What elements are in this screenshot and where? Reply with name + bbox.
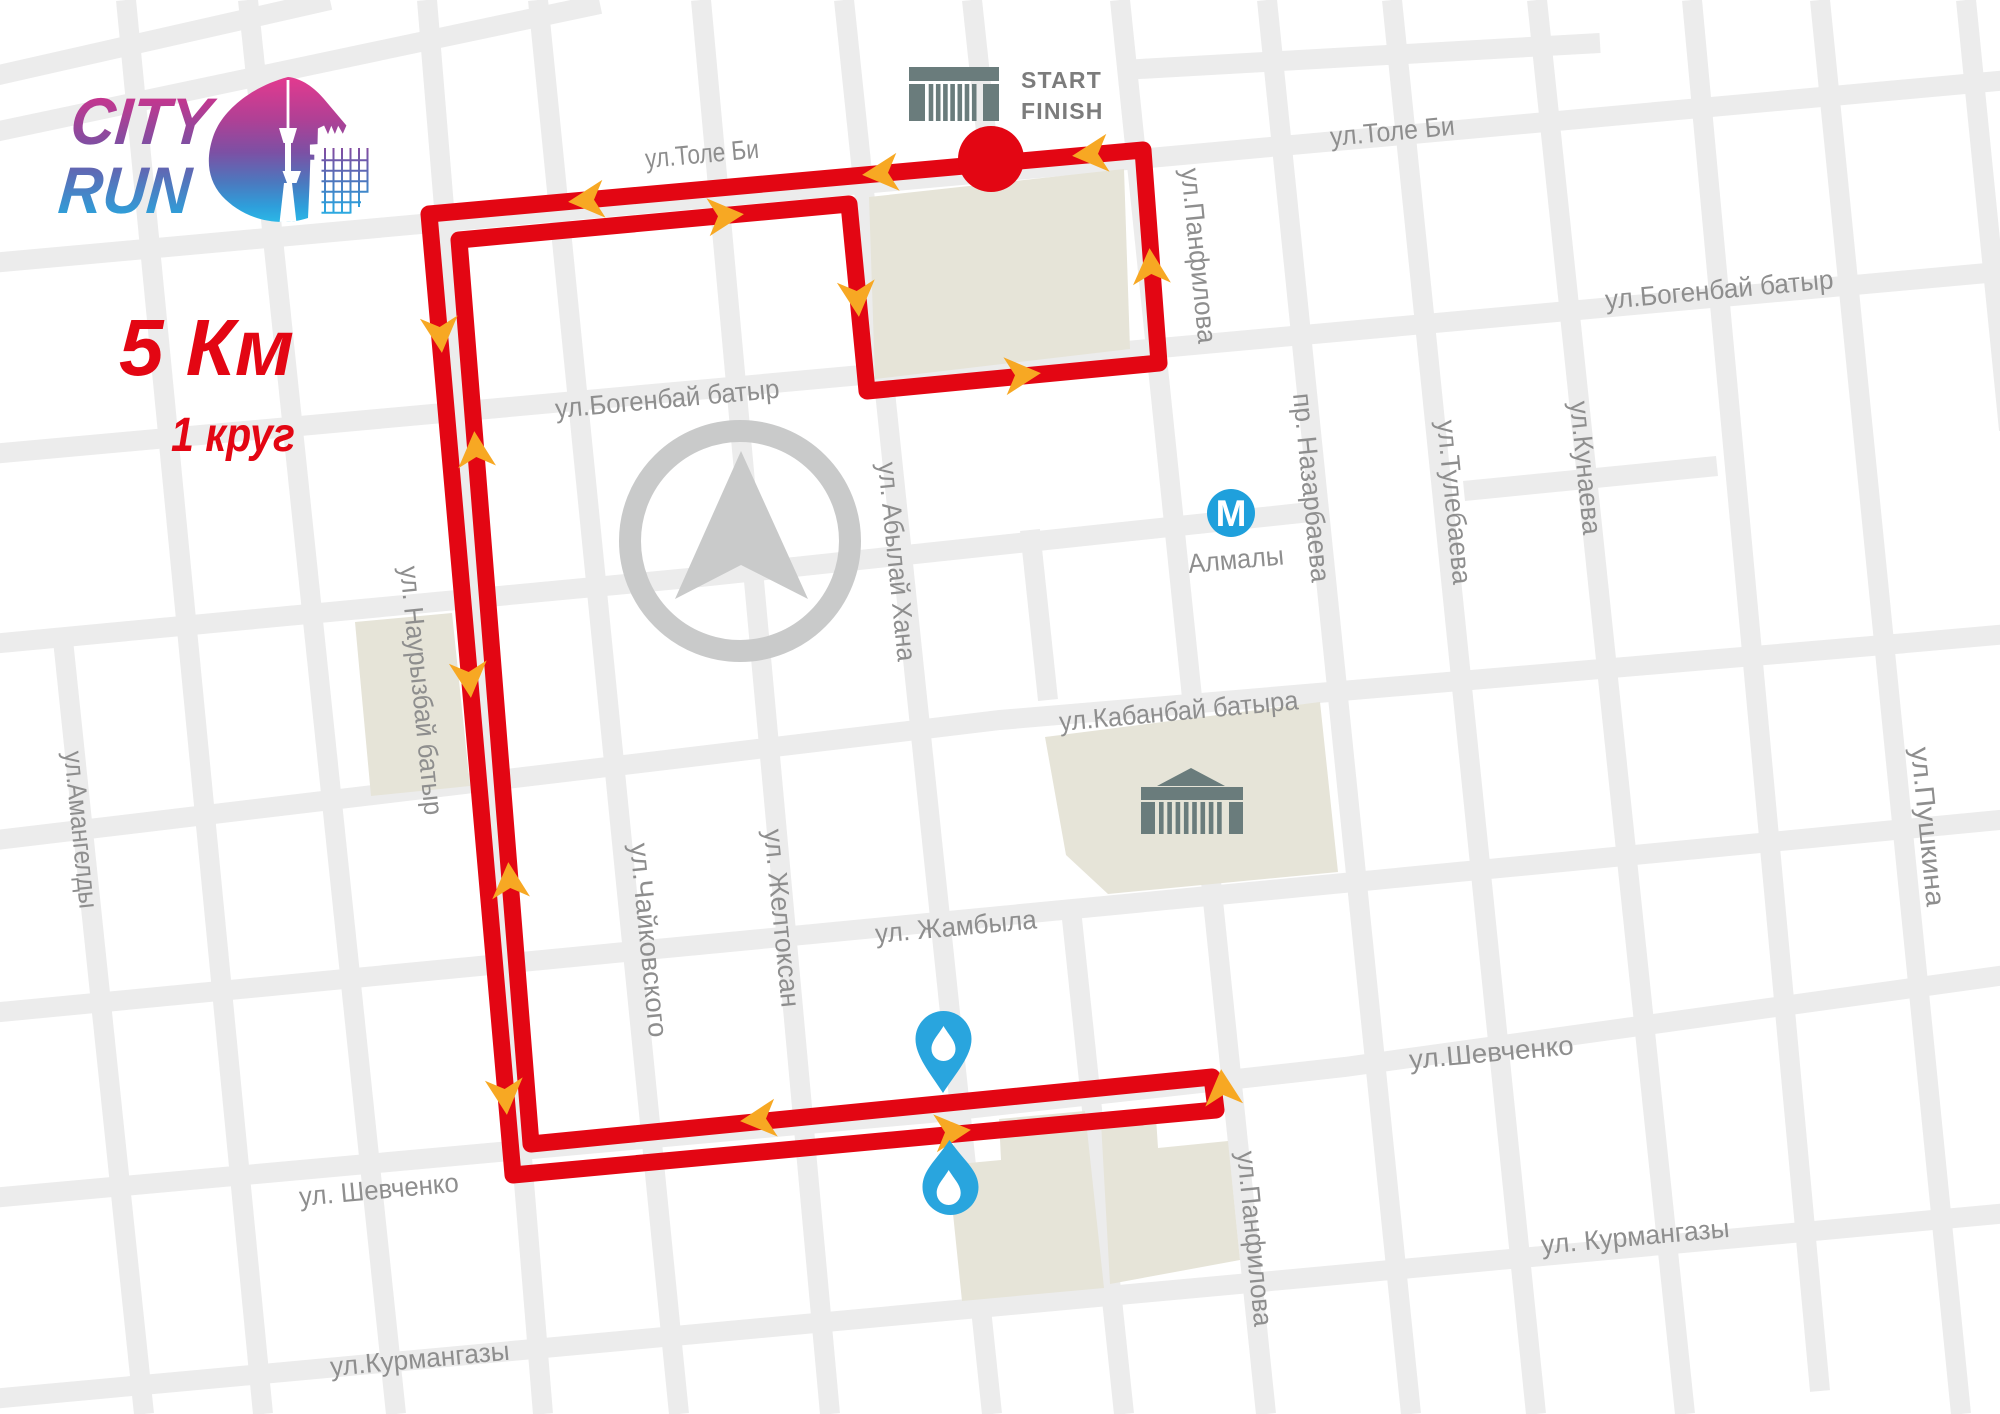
- svg-text:RUN: RUN: [56, 154, 196, 228]
- svg-text:5 Км: 5 Км: [119, 303, 294, 392]
- svg-text:START: START: [1021, 67, 1102, 93]
- svg-text:M: M: [1216, 493, 1247, 534]
- svg-text:1 круг: 1 круг: [171, 409, 295, 462]
- svg-text:CITY: CITY: [68, 85, 220, 159]
- svg-text:FINISH: FINISH: [1021, 98, 1104, 124]
